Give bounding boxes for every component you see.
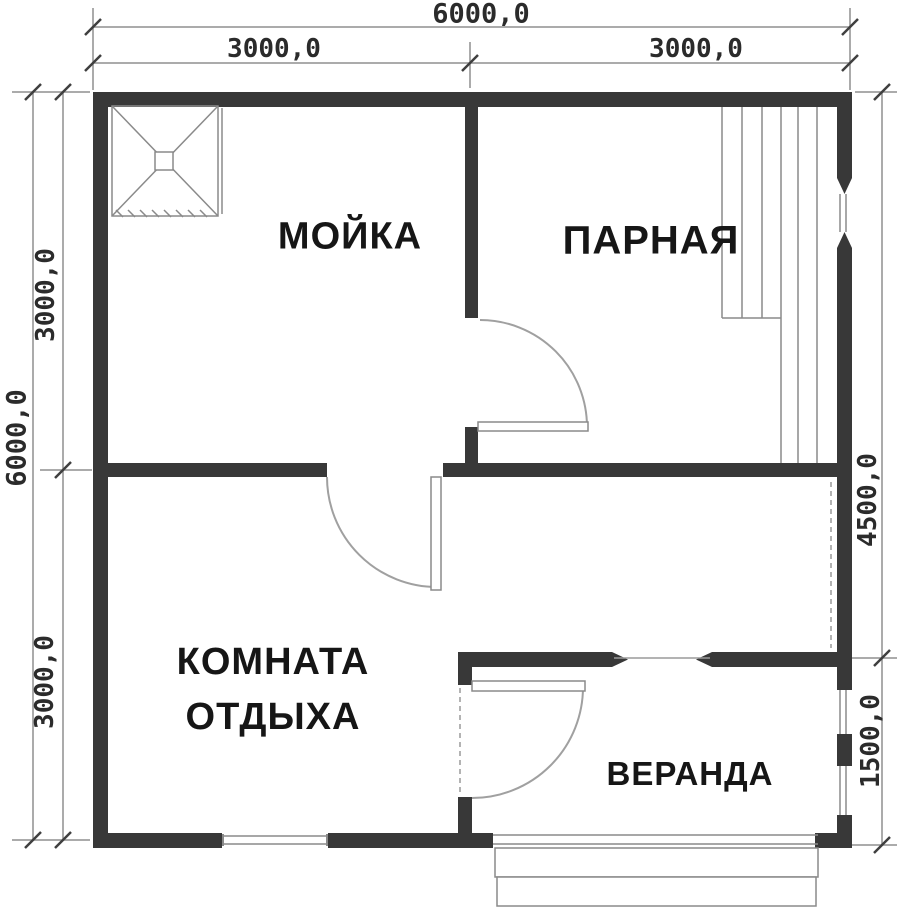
extension-lines bbox=[12, 8, 897, 845]
door-leaf bbox=[431, 477, 441, 590]
door-washing-steam bbox=[478, 320, 588, 431]
room-label-veranda: ВЕРАНДА bbox=[607, 755, 774, 793]
entrance-steps bbox=[495, 848, 818, 906]
dimension-ticks bbox=[25, 19, 890, 853]
room-label-rest-line1: КОМНАТА bbox=[177, 635, 370, 690]
dim-top-left: 3000,0 bbox=[227, 34, 321, 64]
room-label-steam: ПАРНАЯ bbox=[563, 219, 740, 264]
door-arc bbox=[472, 687, 583, 798]
room-label-rest-line2: ОТДЫХА bbox=[177, 690, 370, 745]
dim-left-upper: 3000,0 bbox=[31, 248, 61, 342]
room-label-rest: КОМНАТА ОТДЫХА bbox=[177, 635, 370, 745]
dim-left-lower: 3000,0 bbox=[30, 635, 60, 729]
floor-plan: МОЙКА ПАРНАЯ КОМНАТА ОТДЫХА ВЕРАНДА 6000… bbox=[0, 0, 900, 912]
room-label-washing: МОЙКА bbox=[278, 216, 422, 259]
door-washing-rest bbox=[327, 477, 441, 590]
veranda-open-edge bbox=[493, 835, 818, 844]
door-leaf bbox=[472, 681, 585, 691]
window-steam-room bbox=[840, 194, 846, 232]
dim-right-upper: 4500,0 bbox=[853, 453, 883, 547]
hidden-lines bbox=[460, 482, 831, 795]
dimension-lines bbox=[33, 27, 882, 845]
dim-left-total: 6000,0 bbox=[2, 389, 33, 487]
dim-top-total: 6000,0 bbox=[432, 0, 530, 30]
stove-icon bbox=[112, 106, 222, 217]
bench-planks bbox=[722, 107, 817, 463]
dim-right-lower: 1500,0 bbox=[856, 694, 886, 788]
door-arc bbox=[327, 477, 437, 587]
door-arc bbox=[480, 320, 587, 427]
window-veranda-right bbox=[837, 690, 852, 815]
window-rest-room bbox=[223, 834, 327, 846]
dim-top-right: 3000,0 bbox=[649, 34, 743, 64]
door-leaf bbox=[478, 422, 588, 431]
door-rest-veranda bbox=[472, 681, 585, 798]
